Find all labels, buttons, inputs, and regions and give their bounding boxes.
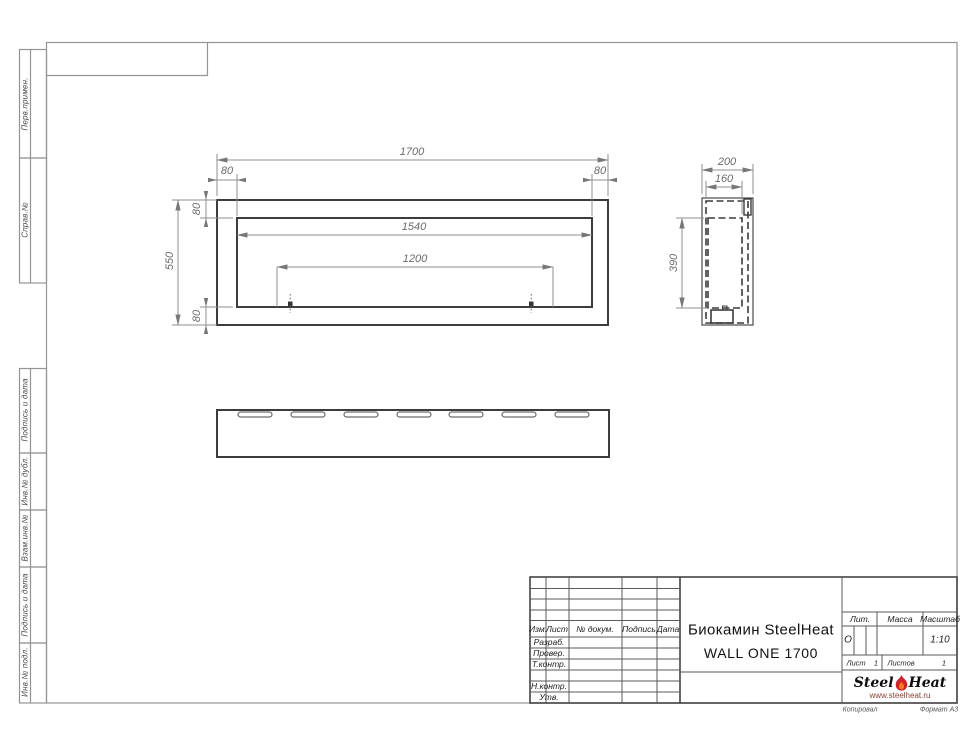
tb-col-podpis: Подпись	[622, 624, 656, 634]
dim-width-total: 1700	[400, 146, 424, 158]
drawing-title-line2: WALL ONE 1700	[704, 645, 818, 661]
logo-word-heat: Heat	[909, 676, 947, 690]
vent-slot	[555, 412, 589, 417]
dim-height-total: 550	[164, 252, 176, 270]
dim-depth-total: 200	[718, 156, 736, 168]
footer-format: Формат А3	[920, 707, 958, 714]
margin-label-podpis-data-1: Подпись и дата	[21, 378, 30, 441]
tb-row-prover: Провер.	[533, 648, 565, 658]
drawing-title-line1: Биокамин SteelHeat	[688, 622, 834, 639]
tb-row-nkontr: Н.контр.	[531, 681, 567, 691]
margin-label-perv-primen: Перв.примен.	[21, 77, 30, 130]
side-view-burner	[711, 310, 733, 323]
tb-col-izm: Изм.	[529, 624, 547, 634]
front-view-burner-marks	[288, 294, 534, 313]
vent-slot	[291, 412, 325, 417]
footer-copied: Копировал	[843, 707, 878, 714]
dim-height-inner: 390	[668, 254, 680, 272]
logo-word-steel: Steel	[854, 676, 894, 690]
dim-inset-top: 80	[191, 203, 203, 215]
dim-offset-right: 80	[594, 165, 606, 177]
margin-label-vzam-inv: Взам.инв.№	[21, 514, 30, 561]
margin-label-podpis-data-2: Подпись и дата	[21, 573, 30, 636]
dim-depth-inner: 160	[715, 173, 733, 185]
dim-inset-bottom: 80	[191, 310, 203, 322]
steelheat-logo: Steel Heat www.steelheat.ru	[843, 671, 957, 703]
vent-slots	[238, 412, 589, 417]
vent-slot	[502, 412, 536, 417]
flame-icon	[895, 675, 908, 691]
margin-label-sprav-no: Справ.№	[21, 202, 30, 238]
tb-row-utv: Утв.	[539, 692, 558, 702]
tb-col-list: Лист	[546, 624, 568, 634]
tb-scale-value: 1:10	[930, 635, 949, 646]
sheet-frame	[20, 43, 958, 704]
vent-slot	[238, 412, 272, 417]
tb-sheets-label: Листов	[887, 659, 914, 668]
tb-sheet-value: 1	[874, 659, 878, 668]
tb-col-data: Дата	[657, 624, 679, 634]
side-view	[702, 198, 753, 325]
vent-slot	[344, 412, 378, 417]
vent-slot	[449, 412, 483, 417]
dim-offset-left: 80	[221, 165, 233, 177]
tb-row-razrab: Разраб.	[534, 637, 565, 647]
dim-opening-width: 1540	[402, 221, 426, 233]
tb-lit-label: Лит.	[850, 614, 870, 624]
logo-url: www.steelheat.ru	[870, 692, 931, 700]
tb-scale-label: Масштаб	[920, 614, 960, 624]
tb-col-dokum: № докум.	[576, 624, 613, 634]
vent-slot	[397, 412, 431, 417]
tb-lit-value: О	[844, 635, 852, 646]
tb-row-tkontr: Т.контр.	[532, 659, 566, 669]
tb-sheet-label: Лист	[846, 659, 865, 668]
tb-mass-label: Масса	[887, 614, 912, 624]
margin-label-inv-dubl: Инв.№ дубл.	[21, 456, 30, 505]
margin-label-inv-podl: Инв.№ подл.	[21, 647, 30, 697]
bottom-view	[217, 410, 609, 457]
drawing-sheet: { "sheet": { "margin_labels_top": ["Перв…	[0, 0, 970, 749]
tb-sheets-value: 1	[942, 659, 946, 668]
dim-burner-span: 1200	[403, 253, 427, 265]
side-view-hidden-firebox	[708, 218, 742, 308]
